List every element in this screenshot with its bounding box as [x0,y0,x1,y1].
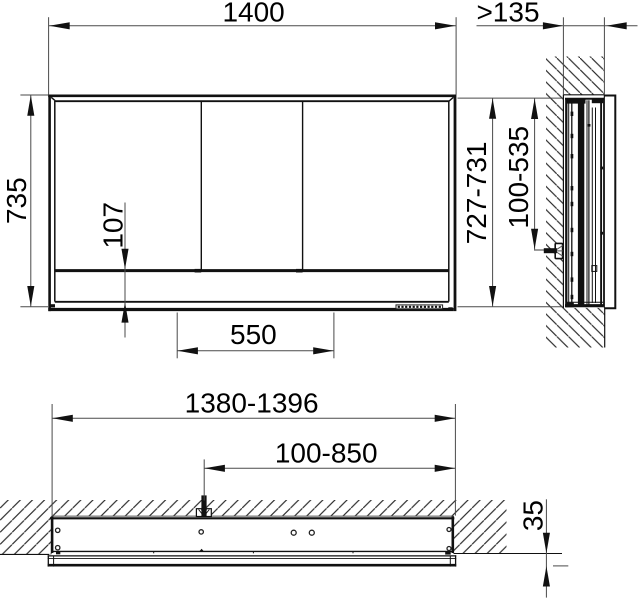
svg-text:100-850: 100-850 [275,437,378,468]
svg-text:>135: >135 [476,0,539,27]
svg-text:735: 735 [1,177,32,224]
svg-text:1380-1396: 1380-1396 [185,388,319,419]
svg-text:1400: 1400 [222,0,284,27]
svg-text:727-731: 727-731 [461,142,492,245]
svg-text:100-535: 100-535 [503,126,534,229]
svg-text:35: 35 [518,500,549,531]
svg-text:107: 107 [97,202,128,249]
svg-text:550: 550 [230,319,277,350]
